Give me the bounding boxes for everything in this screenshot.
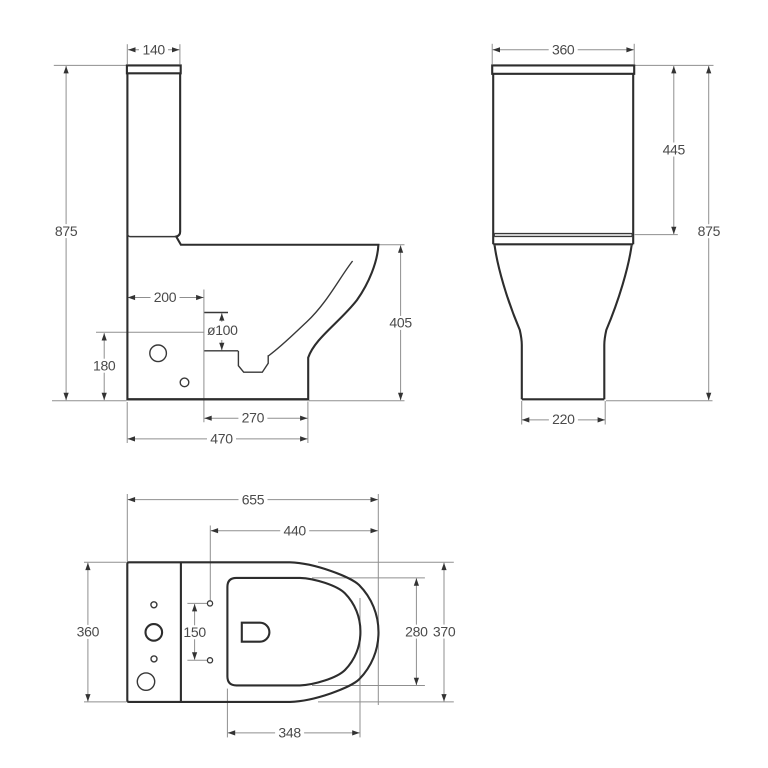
svg-text:150: 150 (183, 624, 206, 640)
svg-text:470: 470 (210, 431, 233, 447)
svg-text:440: 440 (283, 522, 306, 538)
svg-text:875: 875 (55, 223, 78, 239)
svg-text:270: 270 (242, 410, 265, 426)
svg-text:655: 655 (242, 491, 265, 507)
svg-text:280: 280 (405, 623, 428, 639)
svg-text:360: 360 (552, 42, 575, 58)
svg-text:200: 200 (154, 289, 177, 305)
svg-text:360: 360 (77, 624, 100, 640)
svg-text:370: 370 (433, 623, 456, 639)
svg-text:445: 445 (663, 141, 686, 157)
svg-text:405: 405 (389, 315, 412, 331)
svg-text:140: 140 (142, 42, 165, 58)
svg-text:ø100: ø100 (207, 322, 238, 338)
svg-text:875: 875 (698, 223, 721, 239)
svg-text:348: 348 (278, 725, 301, 741)
svg-text:220: 220 (552, 411, 575, 427)
svg-text:180: 180 (93, 358, 116, 374)
